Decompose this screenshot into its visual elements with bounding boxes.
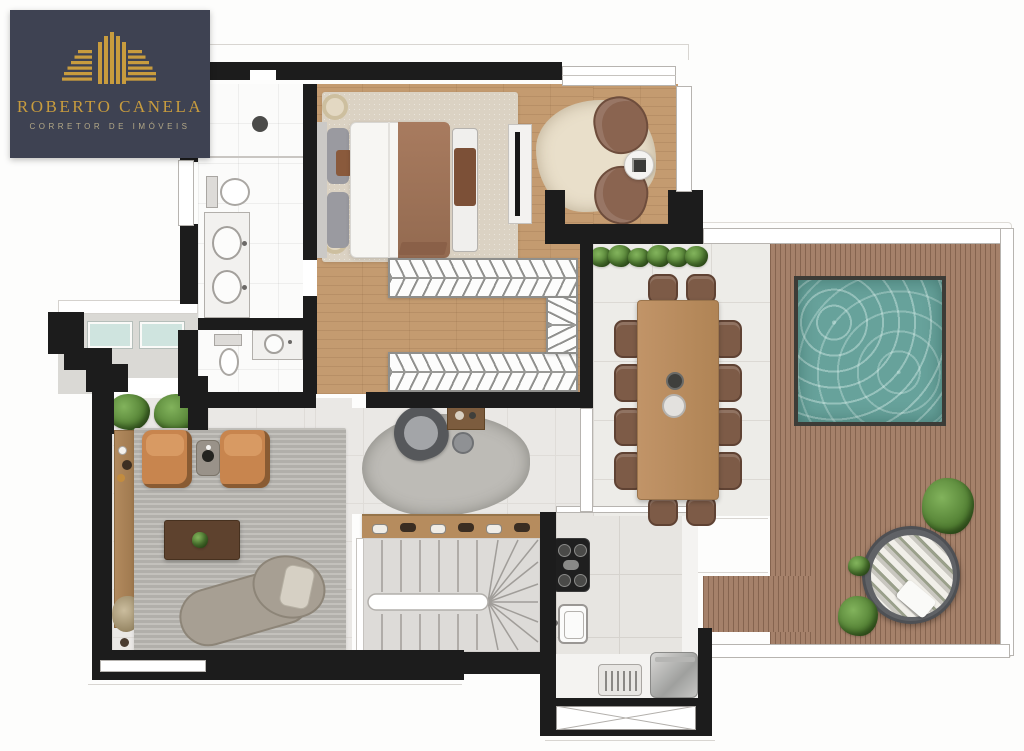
dining-chair: [686, 496, 716, 526]
outline-bottom-left: [88, 684, 462, 685]
wall-kitchen-left: [540, 512, 556, 704]
sitting-window-right: [676, 86, 692, 192]
burner: [574, 574, 587, 587]
dining-chair: [648, 496, 678, 526]
outline-bottom-kitchen: [545, 740, 715, 741]
parapet-bottom: [710, 644, 1010, 658]
deck-strip-to-kitchen: [703, 576, 813, 632]
fridge-handle: [655, 657, 695, 662]
sideboard-decor: [120, 638, 129, 647]
pool: [794, 276, 946, 426]
table-lamp: [202, 450, 214, 462]
fridge: [650, 652, 698, 698]
burner: [574, 544, 587, 557]
sideboard-decor: [122, 460, 132, 470]
staircase: [362, 538, 540, 652]
faucet: [288, 340, 292, 344]
armchair: [220, 430, 270, 488]
desk-decor: [469, 412, 476, 419]
bedroom-window-top: [562, 66, 676, 86]
wall-entry-right: [188, 376, 208, 430]
bed-blanket: [398, 122, 450, 258]
wardrobe-top: [388, 258, 578, 298]
desk-decor: [455, 411, 464, 420]
pouf: [322, 94, 348, 120]
tv-screen: [515, 132, 520, 216]
desk: [447, 406, 485, 430]
bar-bottle: [400, 523, 416, 532]
kitchen-service-window: [556, 706, 696, 730]
deck-plant: [848, 556, 870, 576]
sink-basin: [564, 611, 584, 639]
dishwasher: [598, 664, 642, 696]
coffee-table-plant: [192, 532, 208, 548]
wall-stairs-bottom: [364, 652, 544, 674]
stool: [452, 432, 474, 454]
hedge-row: [590, 245, 708, 268]
wall-bedroom-terrace: [545, 224, 703, 244]
deck-plant: [922, 478, 974, 534]
toilet-tank: [206, 176, 218, 208]
roof-outline-tick-right: [688, 44, 689, 60]
brand-subtitle: CORRETOR DE IMÓVEIS: [10, 122, 210, 131]
bar-glassware: [372, 524, 388, 534]
bar-bottle: [514, 523, 530, 532]
table-decor: [206, 445, 211, 450]
burner: [558, 544, 571, 557]
stair-side-wall: [356, 538, 364, 656]
entry-glass-door: [88, 322, 132, 348]
table-centerpiece: [662, 394, 686, 418]
bath-door-opening: [303, 260, 317, 296]
kitchen-sink: [558, 604, 588, 644]
wardrobe-bottom: [388, 352, 578, 392]
bar-bottle: [458, 523, 474, 532]
burner: [558, 574, 571, 587]
shower-drain: [252, 116, 268, 132]
vanity-sink: [212, 270, 242, 304]
bed-pillow: [327, 192, 349, 248]
bedroom-window-mullion: [562, 75, 676, 76]
parapet-right: [1000, 228, 1014, 656]
terrace-glass-door: [580, 408, 593, 512]
cooktop-control: [563, 560, 579, 570]
hedge-bush: [685, 246, 708, 267]
sideboard-decor: [117, 474, 125, 482]
side-table-decor: [632, 158, 646, 172]
wall-closet-right: [580, 240, 593, 408]
bar-counter: [362, 514, 540, 538]
wall-bath-right: [303, 84, 317, 394]
wardrobe-end: [546, 296, 578, 354]
toilet-bowl: [220, 178, 250, 206]
vanity-sink: [212, 226, 242, 260]
living-plant: [108, 394, 150, 430]
brand-title: ROBERTO CANELA: [10, 97, 210, 117]
shower-glass: [200, 156, 304, 158]
tv-console: [508, 124, 532, 224]
faucet: [242, 241, 247, 246]
bed-sheet-fold-line: [388, 122, 390, 258]
toilet-bowl: [219, 348, 239, 376]
wall-bath-left-lower: [180, 224, 198, 304]
brand-logo: ROBERTO CANELA CORRETOR DE IMÓVEIS: [10, 10, 210, 158]
living-window: [100, 660, 206, 672]
wall-kitchen-right: [698, 628, 712, 736]
buildings-logo-icon: [55, 24, 165, 84]
roof-outline-top: [208, 44, 688, 45]
wall-living-left: [92, 428, 112, 680]
bath-window-left: [178, 160, 194, 226]
powder-sink: [264, 334, 284, 354]
bar-glassware: [430, 524, 446, 534]
bar-glassware: [486, 524, 502, 534]
table-centerpiece: [666, 372, 684, 390]
deck-plant: [838, 596, 878, 636]
faucet: [242, 285, 247, 290]
outline-terrace-b: [698, 572, 768, 573]
floor-plan-canvas: ROBERTO CANELA CORRETOR DE IMÓVEIS: [0, 0, 1024, 751]
bed-blanket-fold: [398, 242, 447, 255]
dishwasher-vents: [605, 671, 637, 691]
wall-sitting-corner: [668, 190, 703, 226]
parapet-top: [703, 228, 1009, 244]
tub-chair-seat: [404, 416, 438, 450]
armchair: [142, 430, 192, 488]
bed-headboard: [317, 122, 327, 258]
wall-bedroom-bottom: [366, 392, 593, 408]
wall-bath-divider: [198, 318, 303, 330]
toilet-tank: [214, 334, 242, 346]
bench-cushion: [454, 148, 476, 206]
wall-top-notch: [250, 70, 276, 80]
sideboard-decor: [118, 446, 127, 455]
cooktop: [552, 538, 590, 592]
